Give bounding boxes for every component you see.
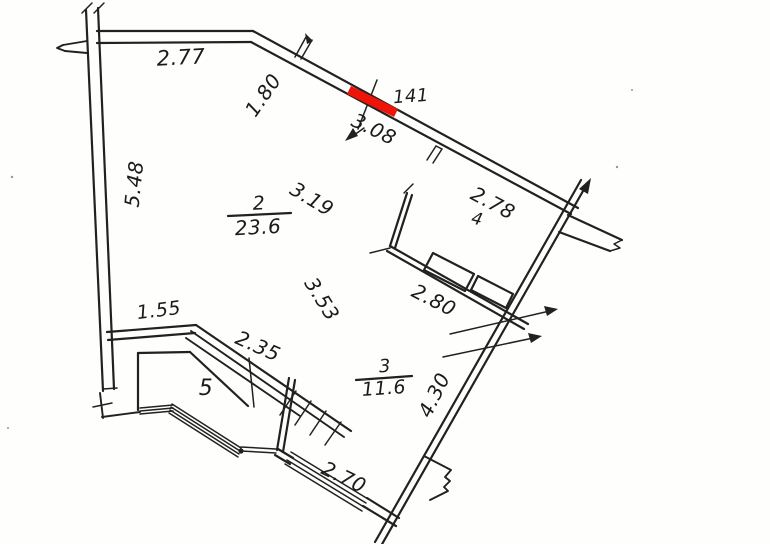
room-3-area: 11.6 xyxy=(361,378,407,400)
room-2-number: 2 xyxy=(252,194,266,214)
left-exterior-wall xyxy=(82,3,117,418)
balcony-bottom-railing xyxy=(102,404,276,457)
dim-label-top-wall: 2.77 xyxy=(156,46,206,70)
right-wall-break-stub xyxy=(559,215,622,251)
wall-stub-b xyxy=(427,146,442,163)
room-5-number: 5 xyxy=(199,378,214,400)
left-wall-stub xyxy=(57,41,87,53)
scan-noise xyxy=(7,89,633,429)
dim-label-balcony-top: 1.55 xyxy=(136,299,182,323)
dimension-arrows-right xyxy=(443,306,558,357)
room-3-number: 3 xyxy=(378,358,391,377)
dim-label-highlight: 141 xyxy=(392,87,429,107)
room-2-area: 23.6 xyxy=(234,216,282,238)
plan-linework xyxy=(0,0,770,544)
dim-label-left-wall: 5.48 xyxy=(122,160,147,208)
top-exterior-wall xyxy=(97,31,253,43)
floor-plan: 2.77 1.80 141 3.08 2.78 5.48 3.19 3.53 2… xyxy=(0,0,770,544)
balcony-top-wall xyxy=(107,325,196,340)
room5-walls xyxy=(138,352,248,410)
